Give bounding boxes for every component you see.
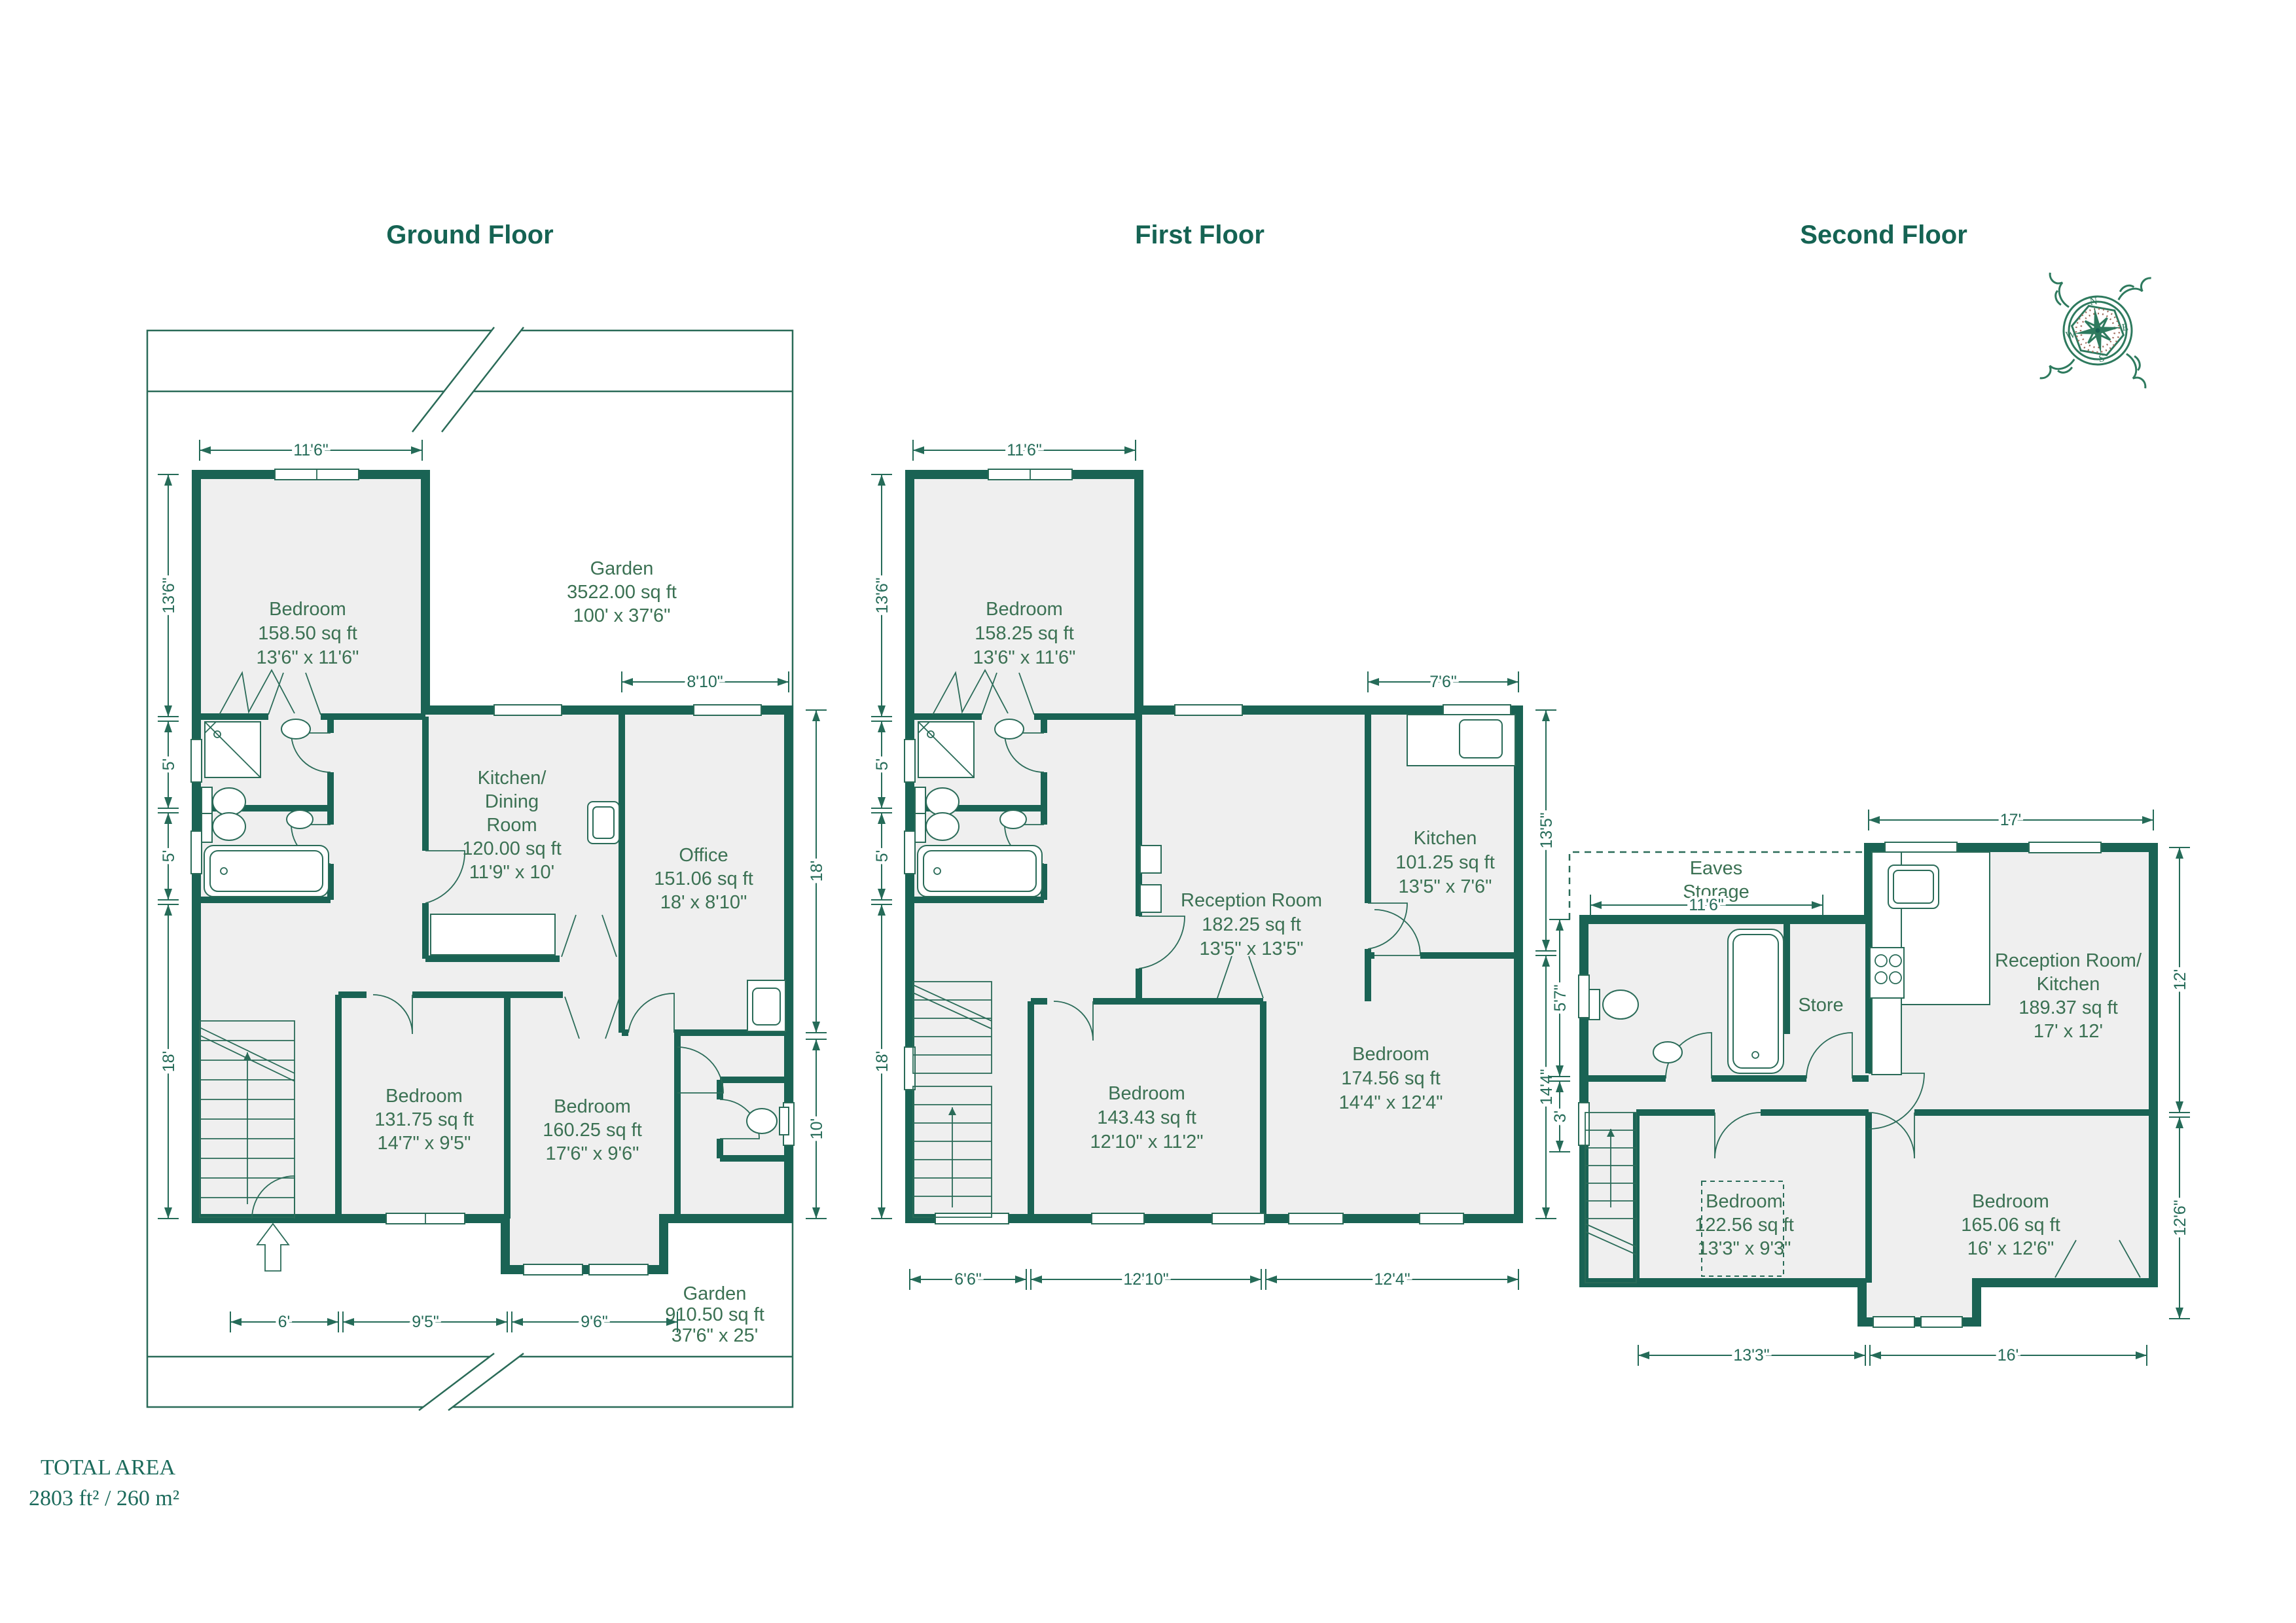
garden-dims: 100' x 37'6"	[573, 605, 671, 626]
first-floor-plan: Bedroom 158.25 sq ft 13'6" x 11'6" Recep…	[871, 440, 1556, 1290]
compass-icon: N E S W	[2026, 259, 2166, 403]
sink-icon	[1000, 810, 1026, 829]
dim-label: 6'6"	[954, 1270, 981, 1289]
sink-icon	[995, 719, 1024, 739]
bedroom-area: 158.25 sq ft	[975, 623, 1074, 644]
dim-label: 12'	[2171, 969, 2189, 991]
svg-text:Kitchen: Kitchen	[2037, 974, 2100, 995]
dim-label: 13'3"	[1733, 1346, 1769, 1364]
dim-label: 18'	[160, 1051, 178, 1073]
dim-label: 9'5"	[412, 1313, 439, 1331]
kitchen-dims: 13'5" x 7'6"	[1399, 876, 1492, 897]
bedroom-area: 143.43 sq ft	[1097, 1107, 1196, 1128]
toilet-icon	[926, 788, 959, 815]
bedroom-dims: 13'6" x 11'6"	[973, 647, 1076, 668]
bedroom-dims: 14'7" x 9'5"	[378, 1133, 471, 1154]
kitchen-sink-icon	[1460, 720, 1502, 758]
reception-label: Reception Room/	[1995, 950, 2142, 971]
compass-e: E	[2121, 322, 2129, 334]
total-area-block: TOTAL AREA 2803 ft² / 260 m²	[29, 1455, 179, 1510]
reception-area: 182.25 sq ft	[1202, 914, 1301, 935]
office-label: Office	[679, 845, 728, 866]
sink-icon	[281, 719, 310, 739]
dim-label: 8'10"	[687, 673, 723, 691]
ground-floor-plan: Garden 3522.00 sq ft 100' x 37'6" Bedroo…	[147, 327, 827, 1410]
total-area-value: 2803 ft² / 260 m²	[29, 1486, 179, 1510]
dim-label: 5'	[160, 758, 178, 771]
bedroom-area: 158.50 sq ft	[258, 623, 357, 644]
office-dims: 18' x 8'10"	[660, 892, 747, 913]
chimney-breast	[1140, 846, 1161, 873]
bedroom-label: Bedroom	[269, 599, 346, 620]
dim-label: 9'6"	[581, 1313, 607, 1331]
reception-dims: 17' x 12'	[2034, 1021, 2103, 1042]
kitchen-label: Kitchen/	[478, 768, 547, 789]
toilet-icon	[1603, 990, 1638, 1019]
floorplan-page: Ground Floor First Floor Second Floor	[0, 0, 2296, 1623]
kitchen-label: Kitchen	[1414, 828, 1477, 849]
kitchen-area: 120.00 sq ft	[462, 838, 562, 859]
dim-label: 14'4"	[1537, 1069, 1556, 1105]
first-floor-title: First Floor	[1135, 221, 1265, 249]
kitchen-dims: 11'9" x 10'	[469, 862, 554, 883]
ground-floor-title: Ground Floor	[386, 221, 554, 249]
compass-w: W	[2065, 329, 2077, 342]
garden-area: 910.50 sq ft	[665, 1304, 764, 1325]
floorplan-canvas: Ground Floor First Floor Second Floor	[0, 0, 2296, 1623]
dim-label: 5'	[873, 850, 891, 863]
bedroom-dims: 13'3" x 9'3"	[1698, 1238, 1791, 1259]
reception-dims: 13'5" x 13'5"	[1199, 938, 1303, 959]
bedroom-area: 160.25 sq ft	[543, 1120, 642, 1141]
garden-dims: 37'6" x 25'	[672, 1325, 759, 1346]
garden-break-top	[412, 327, 524, 432]
garden-label: Garden	[683, 1283, 747, 1304]
bedroom-dims: 14'4" x 12'4"	[1338, 1092, 1443, 1113]
bedroom-dims: 13'6" x 11'6"	[257, 647, 359, 668]
garden-label: Garden	[590, 558, 654, 579]
dim-label: 3'	[1551, 1111, 1570, 1123]
kitchen-area: 101.25 sq ft	[1395, 852, 1495, 873]
dim-label: 6'	[278, 1313, 291, 1331]
toilet-icon	[926, 813, 959, 840]
dim-label: 11'6"	[1689, 896, 1724, 914]
bedroom-label: Bedroom	[554, 1096, 631, 1117]
bedroom-label: Bedroom	[1972, 1191, 2049, 1212]
sink-icon	[753, 988, 780, 1025]
dim-label: 12'6"	[2171, 1200, 2189, 1236]
dim-label: 13'6"	[873, 577, 891, 613]
bedroom-area: 165.06 sq ft	[1961, 1215, 2060, 1236]
sink-icon	[1653, 1042, 1682, 1063]
svg-text:Room: Room	[486, 815, 537, 836]
toilet-icon	[213, 813, 245, 840]
dim-label: 5'	[873, 758, 891, 771]
bedroom-label: Bedroom	[1706, 1191, 1783, 1212]
sink-icon	[287, 810, 313, 829]
chimney-breast	[1140, 885, 1161, 912]
dim-label: 11'6"	[293, 441, 329, 459]
bedroom-dims: 17'6" x 9'6"	[546, 1143, 639, 1164]
dim-label: 7'6"	[1429, 673, 1456, 691]
office-area: 151.06 sq ft	[654, 868, 753, 889]
bedroom-area: 131.75 sq ft	[374, 1109, 474, 1130]
bedroom-area: 174.56 sq ft	[1341, 1068, 1441, 1089]
dim-label: 12'10"	[1123, 1270, 1168, 1289]
toilet-icon	[213, 788, 245, 815]
reception-area: 189.37 sq ft	[2018, 997, 2118, 1018]
reception-label: Reception Room	[1181, 890, 1322, 911]
second-floor-title: Second Floor	[1800, 221, 1967, 249]
toilet-icon	[747, 1109, 777, 1133]
kitchen-counter	[431, 914, 555, 955]
dim-label: 18'	[873, 1051, 891, 1073]
dim-label: 17'	[2000, 811, 2022, 829]
dim-label: 11'6"	[1007, 441, 1042, 459]
bedroom-label: Bedroom	[386, 1086, 463, 1107]
bedroom-dims: 12'10" x 11'2"	[1090, 1132, 1203, 1152]
total-area-title: TOTAL AREA	[41, 1455, 175, 1480]
dim-label: 10'	[808, 1118, 826, 1140]
bedroom-area: 122.56 sq ft	[1695, 1215, 1794, 1236]
eaves-label: Eaves	[1690, 858, 1743, 879]
bedroom-label: Bedroom	[1352, 1044, 1429, 1065]
dim-label: 5'	[160, 850, 178, 863]
garden-area: 3522.00 sq ft	[567, 582, 677, 603]
bedroom-label: Bedroom	[986, 599, 1063, 620]
store-label: Store	[1798, 995, 1843, 1016]
dim-label: 5'7"	[1551, 984, 1570, 1011]
dim-label: 13'5"	[1537, 812, 1556, 848]
bedroom-label: Bedroom	[1108, 1083, 1185, 1104]
dim-label: 16'	[1998, 1346, 2019, 1364]
second-floor-plan: Eaves Storage Store Reception Room/ Kitc…	[1549, 810, 2190, 1366]
dim-label: 13'6"	[160, 577, 178, 613]
dim-label: 18'	[808, 861, 826, 882]
garden-break-bottom	[419, 1353, 524, 1410]
svg-text:Dining: Dining	[485, 791, 539, 812]
bedroom-dims: 16' x 12'6"	[1967, 1238, 2054, 1259]
dim-label: 12'4"	[1374, 1270, 1410, 1289]
